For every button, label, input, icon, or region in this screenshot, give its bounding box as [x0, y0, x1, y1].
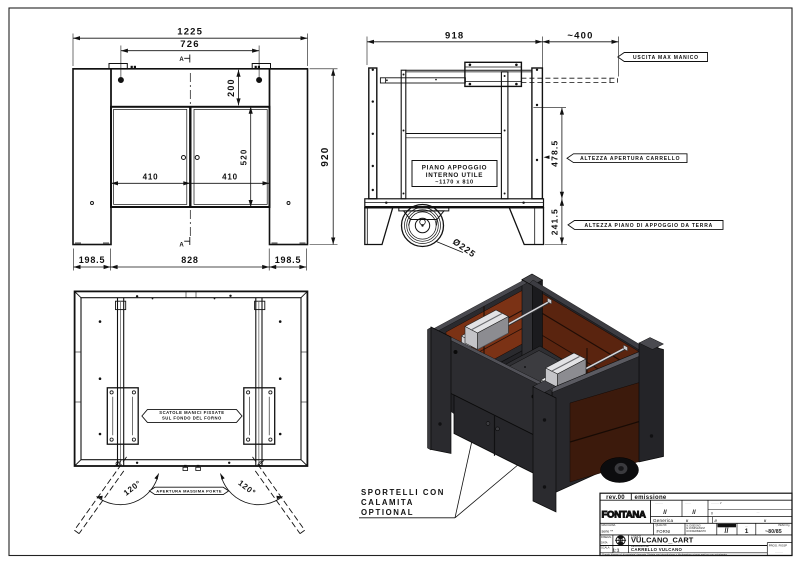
svg-text:········: ········ — [775, 551, 783, 555]
svg-text:~80/85: ~80/85 — [765, 529, 782, 535]
svg-text:ALTEZZA APERTURA CARRELLO: ALTEZZA APERTURA CARRELLO — [580, 156, 680, 162]
svg-text:······: ······ — [685, 501, 691, 505]
svg-text:Generica: Generica — [653, 518, 673, 523]
svg-text:INTERNO UTILE: INTERNO UTILE — [426, 172, 483, 179]
svg-text:FONTANA: FONTANA — [602, 510, 646, 521]
svg-text:rev.00: rev.00 — [606, 495, 625, 501]
svg-text:410: 410 — [143, 173, 159, 182]
svg-text:478.5: 478.5 — [550, 140, 560, 167]
svg-text:A: A — [179, 57, 184, 63]
svg-text:828: 828 — [181, 255, 198, 265]
svg-text:MACCHINA: MACCHINA — [602, 523, 616, 527]
svg-text:DI RIFERIMENTO: DI RIFERIMENTO — [687, 530, 707, 533]
svg-text:VULCANO_CART: VULCANO_CART — [631, 536, 694, 545]
svg-text:···: ··· — [757, 510, 760, 514]
svg-text:~400: ~400 — [567, 30, 593, 41]
svg-text:USCITA MAX MANICO: USCITA MAX MANICO — [633, 55, 699, 61]
svg-text:APERTURA MASSIMA PORTE: APERTURA MASSIMA PORTE — [156, 489, 222, 494]
svg-text://: // — [725, 528, 729, 535]
svg-text:241.5: 241.5 — [550, 208, 560, 235]
svg-text:ALTEZZA PIANO DI APPOGGIO DA T: ALTEZZA PIANO DI APPOGGIO DA TERRA — [585, 223, 714, 229]
svg-text:PESO Kg: PESO Kg — [778, 523, 790, 527]
svg-text:FORNI: FORNI — [657, 529, 671, 534]
svg-text:198.5: 198.5 — [79, 255, 106, 265]
svg-text:PROG. FIGSP: PROG. FIGSP — [769, 543, 787, 547]
svg-text:920: 920 — [320, 147, 331, 167]
svg-text:410: 410 — [222, 173, 238, 182]
svg-text:········ //: ········ // — [711, 501, 722, 505]
svg-text:1225: 1225 — [177, 27, 203, 38]
svg-text:198.5: 198.5 — [275, 255, 302, 265]
svg-text:emissione: emissione — [635, 495, 667, 501]
svg-text:SUL FONDO DEL FORNO: SUL FONDO DEL FORNO — [162, 415, 222, 420]
svg-text:Questo disegno e' di proprieta: Questo disegno e' di proprieta' riservat… — [602, 553, 727, 556]
svg-text:PIANO APPOGGIO: PIANO APPOGGIO — [422, 165, 488, 172]
svg-text:DISEGN.: DISEGN. — [601, 535, 612, 539]
svg-text:SPORTELLI CON: SPORTELLI CON — [361, 488, 445, 497]
svg-text:CALAMITA: CALAMITA — [361, 498, 414, 507]
svg-text:~1170 x 810: ~1170 x 810 — [435, 180, 474, 186]
svg-text:SCALA: SCALA — [601, 546, 610, 550]
svg-text:918: 918 — [445, 30, 464, 41]
svg-text:520: 520 — [240, 148, 249, 165]
svg-text:A: A — [179, 243, 184, 249]
svg-text:0: 0 — [711, 512, 713, 516]
svg-text://: // — [692, 509, 696, 516]
svg-text:serie **: serie ** — [602, 530, 614, 534]
svg-text:1:1: 1:1 — [613, 548, 620, 553]
svg-text:726: 726 — [180, 39, 199, 50]
svg-text:CARRELLO VULCANO: CARRELLO VULCANO — [631, 547, 682, 552]
svg-text:DATA: DATA — [601, 541, 608, 545]
svg-text:QUALITA': QUALITA' — [656, 523, 668, 527]
svg-text:OPTIONAL: OPTIONAL — [361, 508, 414, 517]
svg-text://: // — [663, 509, 667, 516]
svg-text:1: 1 — [745, 528, 749, 535]
svg-text:200: 200 — [226, 78, 236, 97]
svg-text:········: ········ — [655, 501, 663, 505]
